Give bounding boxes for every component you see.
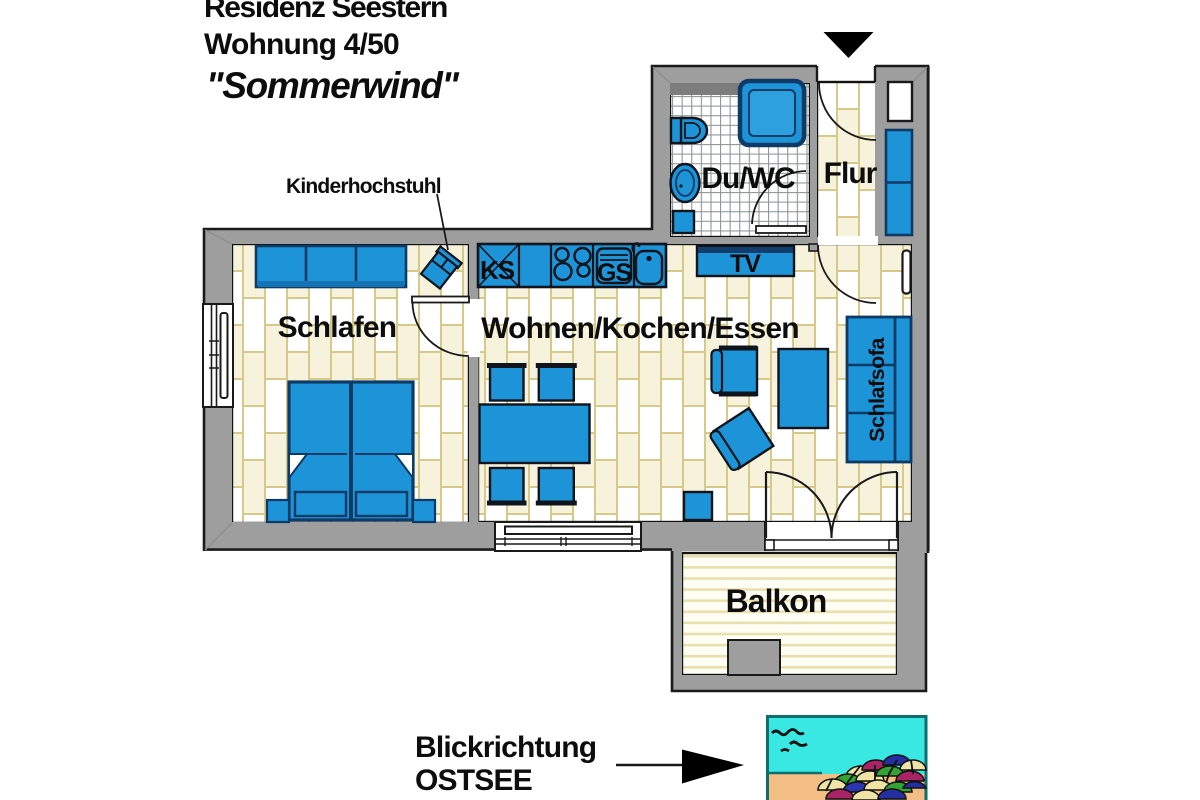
svg-text:OSTSEE: OSTSEE [415,764,532,797]
svg-text:Blickrichtung: Blickrichtung [415,731,596,764]
svg-text:"Sommerwind": "Sommerwind" [206,65,460,106]
svg-text:TV: TV [730,250,761,278]
svg-text:Flur: Flur [824,157,878,190]
svg-text:Schlafen: Schlafen [278,311,397,344]
svg-text:Residenz Seestern: Residenz Seestern [204,0,447,24]
svg-text:Wohnen/Kochen/Essen: Wohnen/Kochen/Essen [481,312,799,345]
svg-text:KS: KS [480,255,515,285]
svg-text:Schlafsofa: Schlafsofa [865,337,889,442]
svg-text:Balkon: Balkon [726,583,827,619]
svg-text:Du/WC: Du/WC [701,162,795,195]
svg-text:GS: GS [597,259,631,287]
svg-text:Wohnung 4/50: Wohnung 4/50 [204,28,399,61]
svg-text:Kinderhochstuhl: Kinderhochstuhl [286,175,441,198]
